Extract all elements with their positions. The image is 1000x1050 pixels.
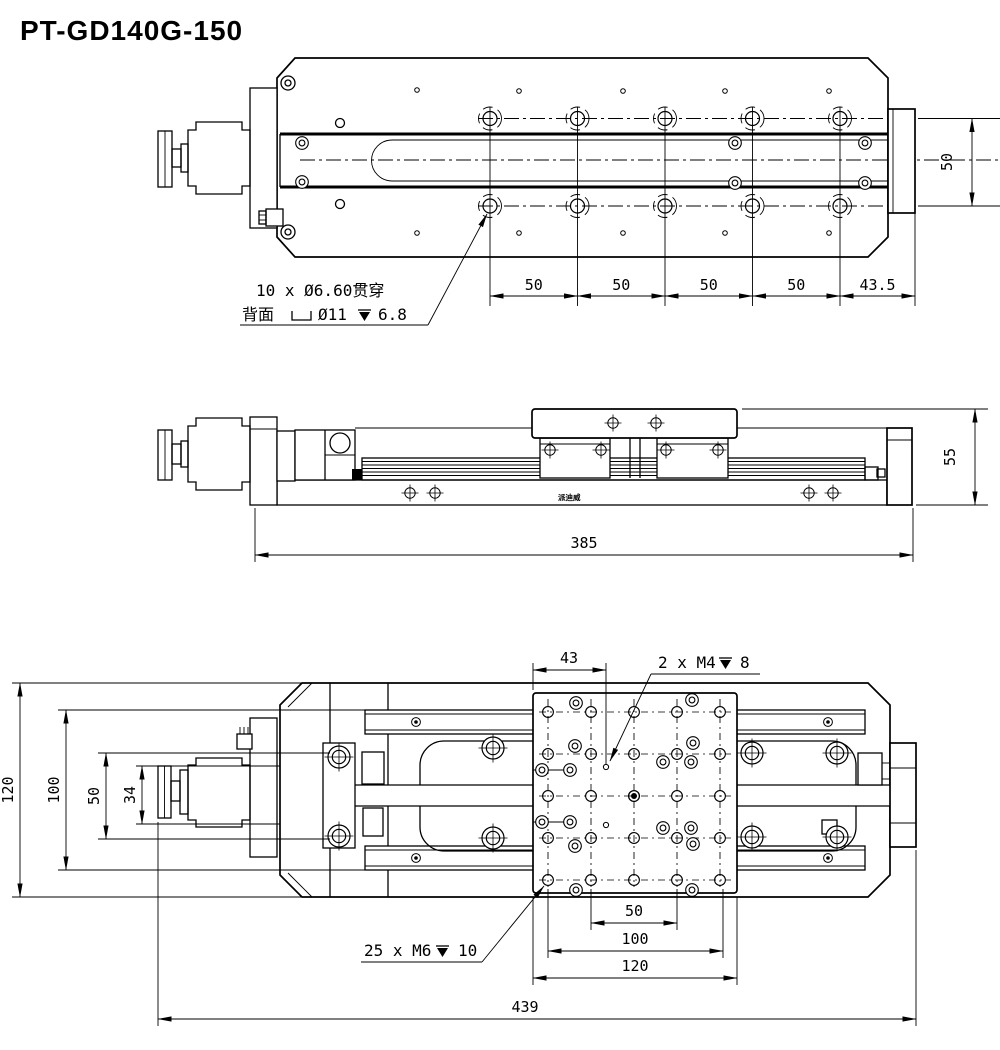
page-title: PT-GD140G-150: [20, 15, 243, 46]
hole-note-back-label: 背面: [242, 305, 274, 324]
end-block: [888, 109, 915, 213]
stepper-motor: [158, 417, 277, 505]
dimension-label: 50: [700, 276, 718, 294]
dimension-label: 120: [0, 776, 17, 803]
top-view: 50 50 50 50 43.5 50 10 x Ø6.60贯穿 背面 Ø11 …: [158, 58, 1000, 325]
depth-symbol: [358, 310, 371, 321]
dimension-label: 120: [621, 957, 648, 975]
hole-note-depth: 6.8: [378, 305, 407, 324]
end-block: [890, 743, 916, 847]
dimension-label: 50: [938, 153, 956, 171]
bottom-view: 43 2 x M4 8 25 x M6 10: [0, 649, 916, 1026]
drawing-sheet: PT-GD140G-150: [0, 0, 1000, 1050]
pitch-dimensions: 50 50 50 50 43.5: [490, 276, 915, 296]
motor-flange: [250, 417, 277, 505]
depth-symbol: [436, 946, 449, 957]
dimension-label: 100: [621, 930, 648, 948]
dimension-label: 34: [121, 786, 139, 804]
motor-shaft: [172, 444, 181, 464]
base-plate: [277, 480, 887, 505]
m6-note-depth: 10: [458, 941, 477, 960]
dimension-label: 43.5: [859, 276, 895, 294]
dimension-label: 50: [525, 276, 543, 294]
motor-flange: [250, 88, 277, 228]
bearing-block: [323, 743, 355, 851]
base-plate-outline: [277, 58, 888, 257]
linear-rail: [352, 458, 878, 480]
motor-body: [188, 122, 250, 194]
coupling-housing: [277, 430, 355, 481]
m4-note-depth: 8: [740, 653, 750, 672]
stepper-motor: [158, 718, 277, 857]
m6-note-text: 25 x M6: [364, 941, 431, 960]
depth-symbol: [719, 658, 732, 669]
brand-text: 派迪威: [558, 492, 581, 502]
table-width-dimension: 50: [918, 119, 1000, 207]
dimension-label: 43: [560, 649, 578, 667]
dimension-label: 439: [511, 998, 538, 1016]
dimension-label: 50: [625, 902, 643, 920]
motor-flange: [250, 718, 277, 857]
motor-body: [188, 758, 250, 827]
plate-screws: [281, 76, 871, 239]
moving-table: [532, 409, 737, 438]
hole-note-cbore: Ø11: [318, 305, 347, 324]
offset-dimension: 43: [533, 649, 606, 693]
dimension-label: 50: [787, 276, 805, 294]
stepper-motor: [158, 88, 283, 228]
leader-line: [428, 214, 487, 325]
m4-note-text: 2 x M4: [658, 653, 716, 672]
left-dimensions: 120 100 50 34: [0, 683, 365, 897]
motor-shaft: [171, 781, 180, 801]
dimension-label: 55: [941, 448, 959, 466]
dimension-label: 50: [612, 276, 630, 294]
dimension-label: 100: [45, 776, 63, 803]
dimension-label: 50: [85, 787, 103, 805]
length-dimension: 385: [255, 508, 913, 562]
motor-body: [188, 418, 250, 490]
side-view: 派迪威 385 55: [158, 409, 988, 562]
hole-note-line1: 10 x Ø6.60贯穿: [256, 281, 384, 300]
dimension-label: 385: [570, 534, 597, 552]
moving-platform: [533, 693, 737, 896]
table-slot: [372, 140, 888, 181]
motor-shaft: [172, 149, 181, 167]
counterbore-symbol: [292, 311, 311, 320]
